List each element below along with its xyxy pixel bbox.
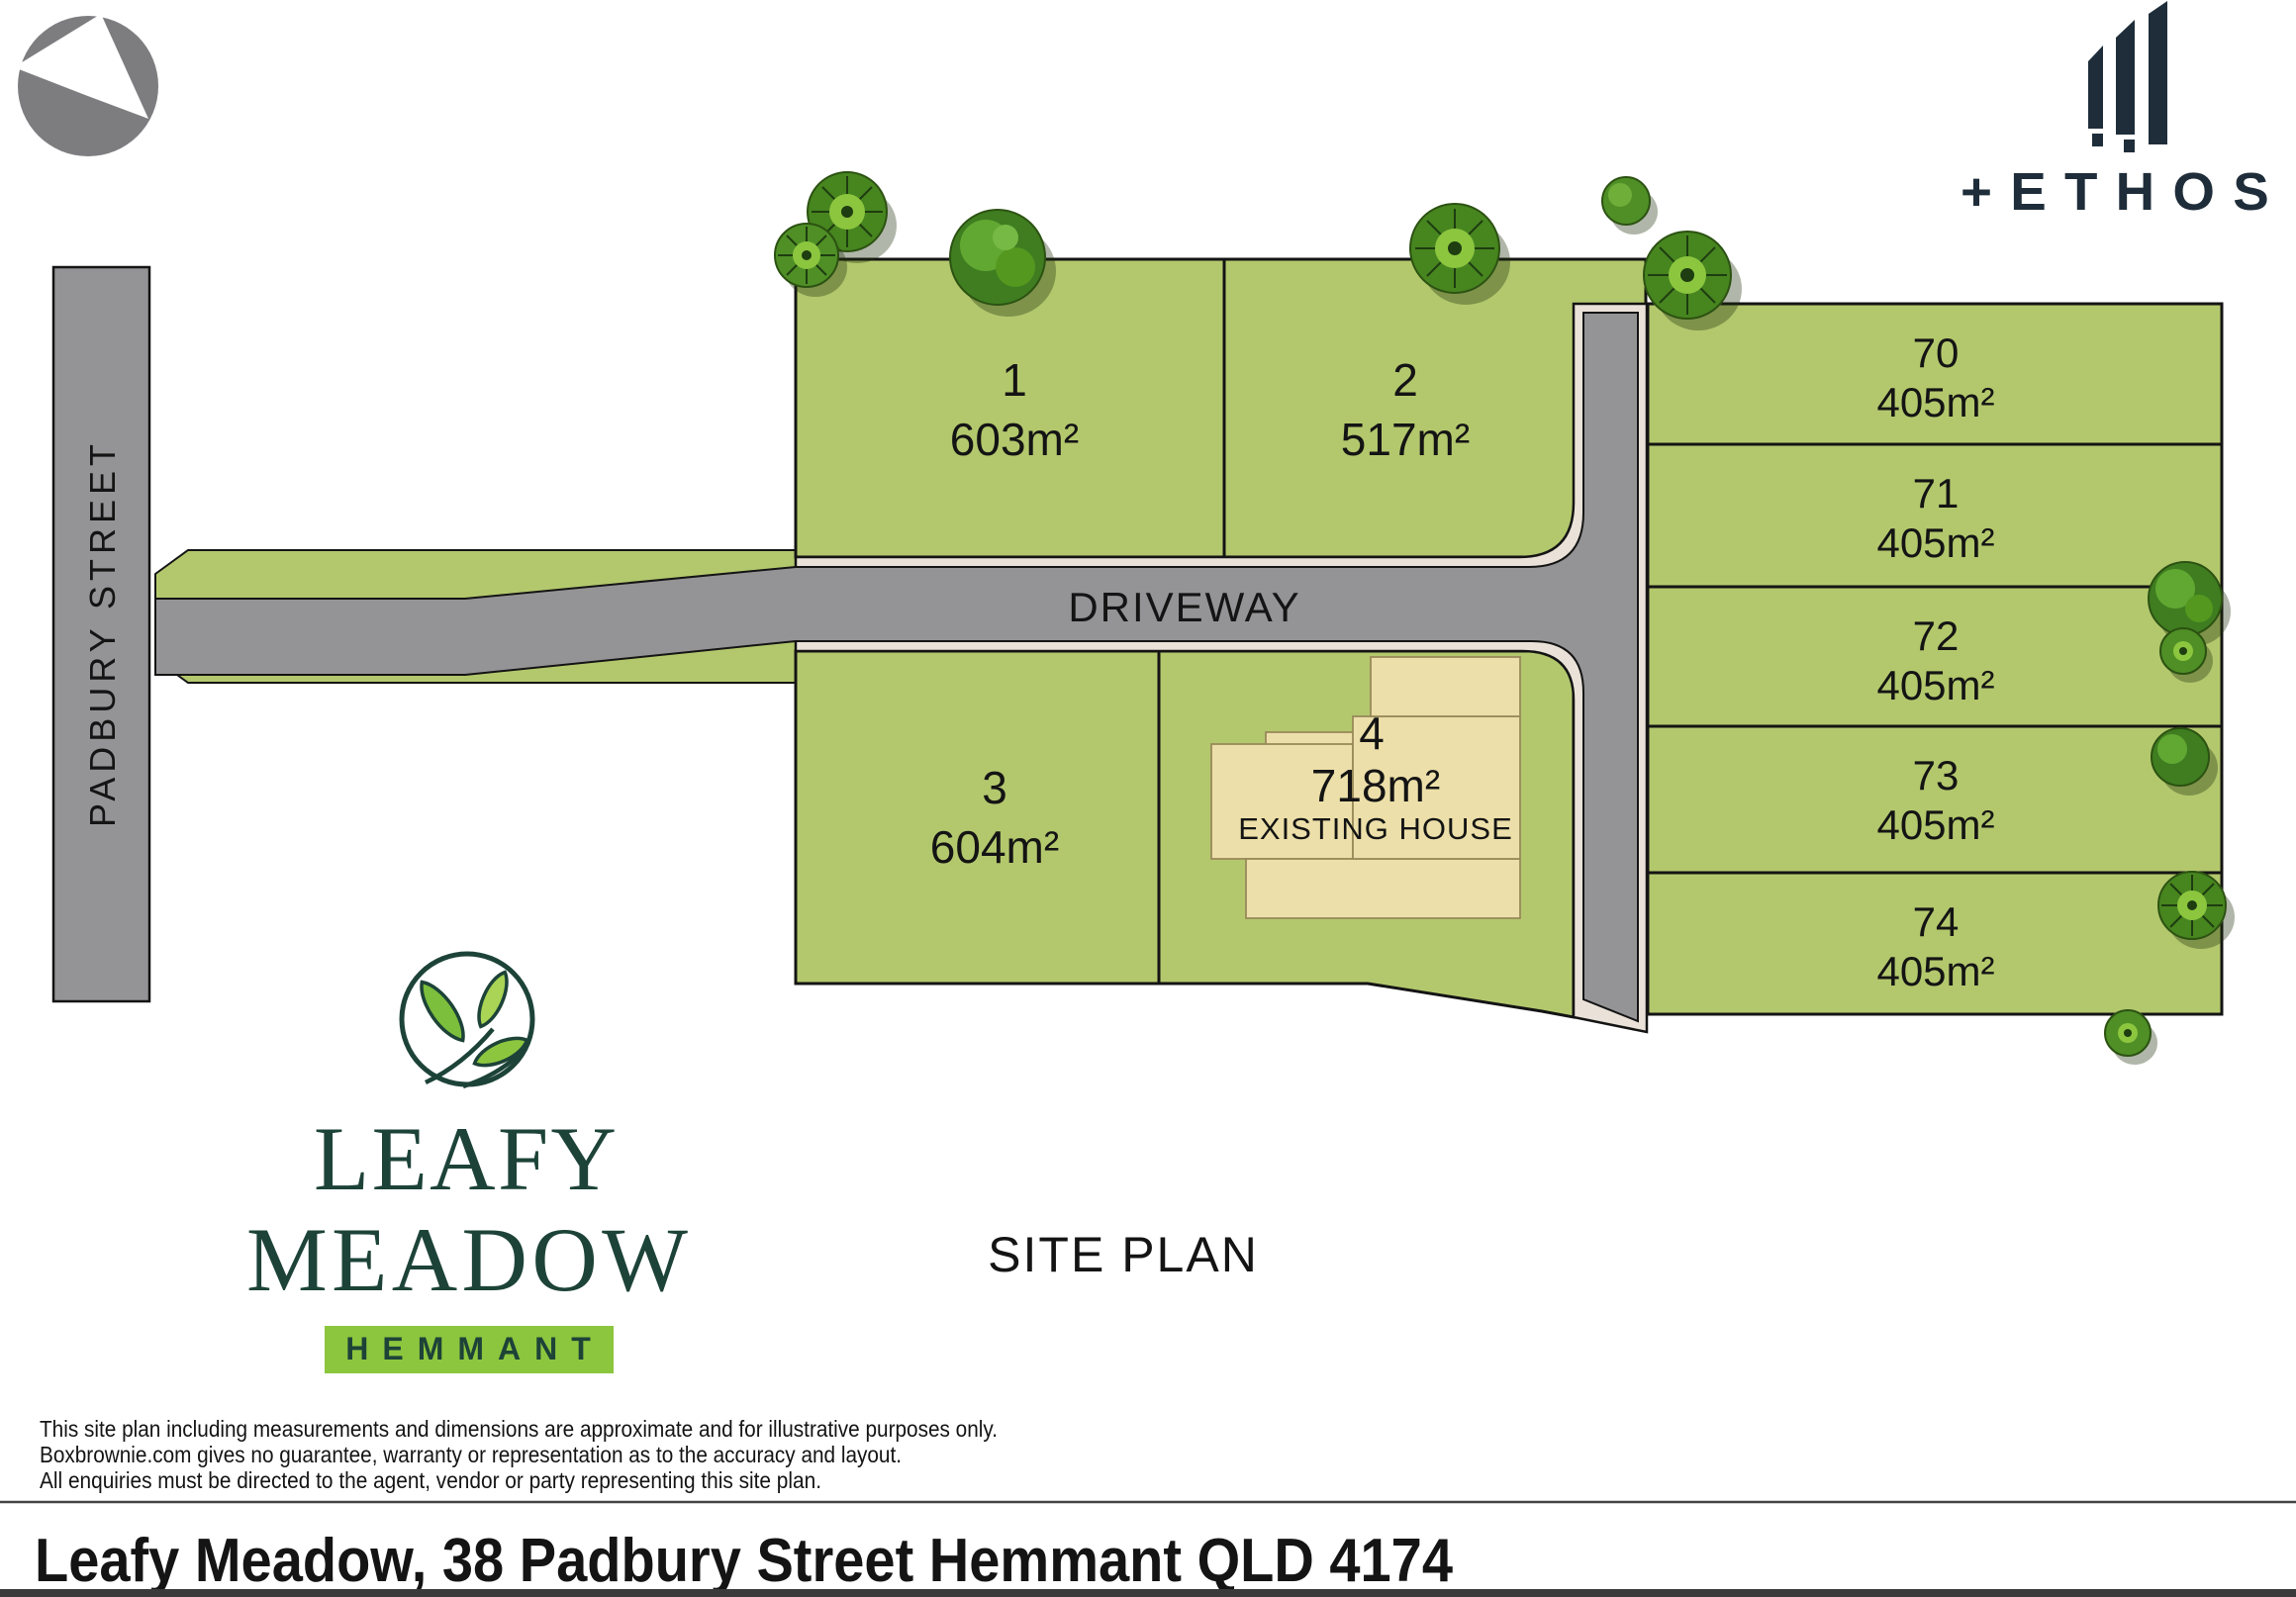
suburb-label: HEMMANT [345, 1331, 605, 1366]
lot-2-area: 517m² [1341, 414, 1470, 465]
padbury-street-label: PADBURY STREET [82, 439, 123, 827]
ethos-buildings-icon [2088, 1, 2167, 152]
disclaimer-block: This site plan including measurements an… [40, 1416, 998, 1493]
lot-73-parcel [1648, 726, 2222, 873]
ethos-wordmark: +ETHOS [1961, 162, 2287, 222]
brand-line1: LEAFY [314, 1108, 617, 1209]
brand-line2: MEADOW [246, 1209, 688, 1310]
house-wing-bottom [1246, 859, 1520, 918]
footer-address: Leafy Meadow, 38 Padbury Street Hemmant … [35, 1527, 1453, 1595]
ethos-logo: +ETHOS [1961, 1, 2287, 222]
lot-1-area: 603m² [950, 414, 1079, 465]
lot-71-number: 71 [1913, 470, 1960, 517]
house-wing-top [1371, 657, 1520, 716]
site-plan-drawing: N PADBURY STREET DRIVEWAY 1 603m² 2 517m… [0, 0, 2296, 1597]
disclaimer-line-1: This site plan including measurements an… [40, 1416, 998, 1442]
lot-1-number: 1 [1002, 354, 1027, 406]
disclaimer-line-3: All enquiries must be directed to the ag… [40, 1467, 821, 1493]
leafy-meadow-logo: LEAFY MEADOW HEMMANT [246, 954, 688, 1373]
lot-2-number: 2 [1392, 354, 1418, 406]
lot-3-area: 604m² [930, 821, 1059, 873]
lot-4-note: EXISTING HOUSE [1238, 811, 1513, 846]
lot-73-area: 405m² [1876, 801, 1994, 848]
site-plan-page: N PADBURY STREET DRIVEWAY 1 603m² 2 517m… [0, 0, 2296, 1597]
lot-4-area: 718m² [1311, 760, 1440, 811]
page-title: SITE PLAN [988, 1227, 1259, 1282]
lot-70-area: 405m² [1876, 379, 1994, 425]
lot-72-number: 72 [1913, 612, 1960, 659]
radial-tree-icon [2105, 1010, 2157, 1065]
page-bottom-bar [0, 1589, 2296, 1597]
logo-circle [402, 954, 532, 1084]
lot-73-number: 73 [1913, 752, 1960, 798]
lot-70-number: 70 [1913, 329, 1960, 376]
lot-74-number: 74 [1913, 898, 1960, 945]
lot-3-parcel [796, 651, 1159, 984]
puffy-tree-icon [1602, 177, 1658, 235]
lot-74-area: 405m² [1876, 948, 1994, 994]
north-arrow-icon: N [14, 14, 158, 163]
lot-72-area: 405m² [1876, 662, 1994, 708]
lot-4-number: 4 [1359, 707, 1385, 759]
lot-3-number: 3 [982, 762, 1007, 813]
driveway-label: DRIVEWAY [1068, 584, 1300, 630]
disclaimer-line-2: Boxbrownie.com gives no guarantee, warra… [40, 1442, 902, 1467]
lot-71-area: 405m² [1876, 519, 1994, 566]
